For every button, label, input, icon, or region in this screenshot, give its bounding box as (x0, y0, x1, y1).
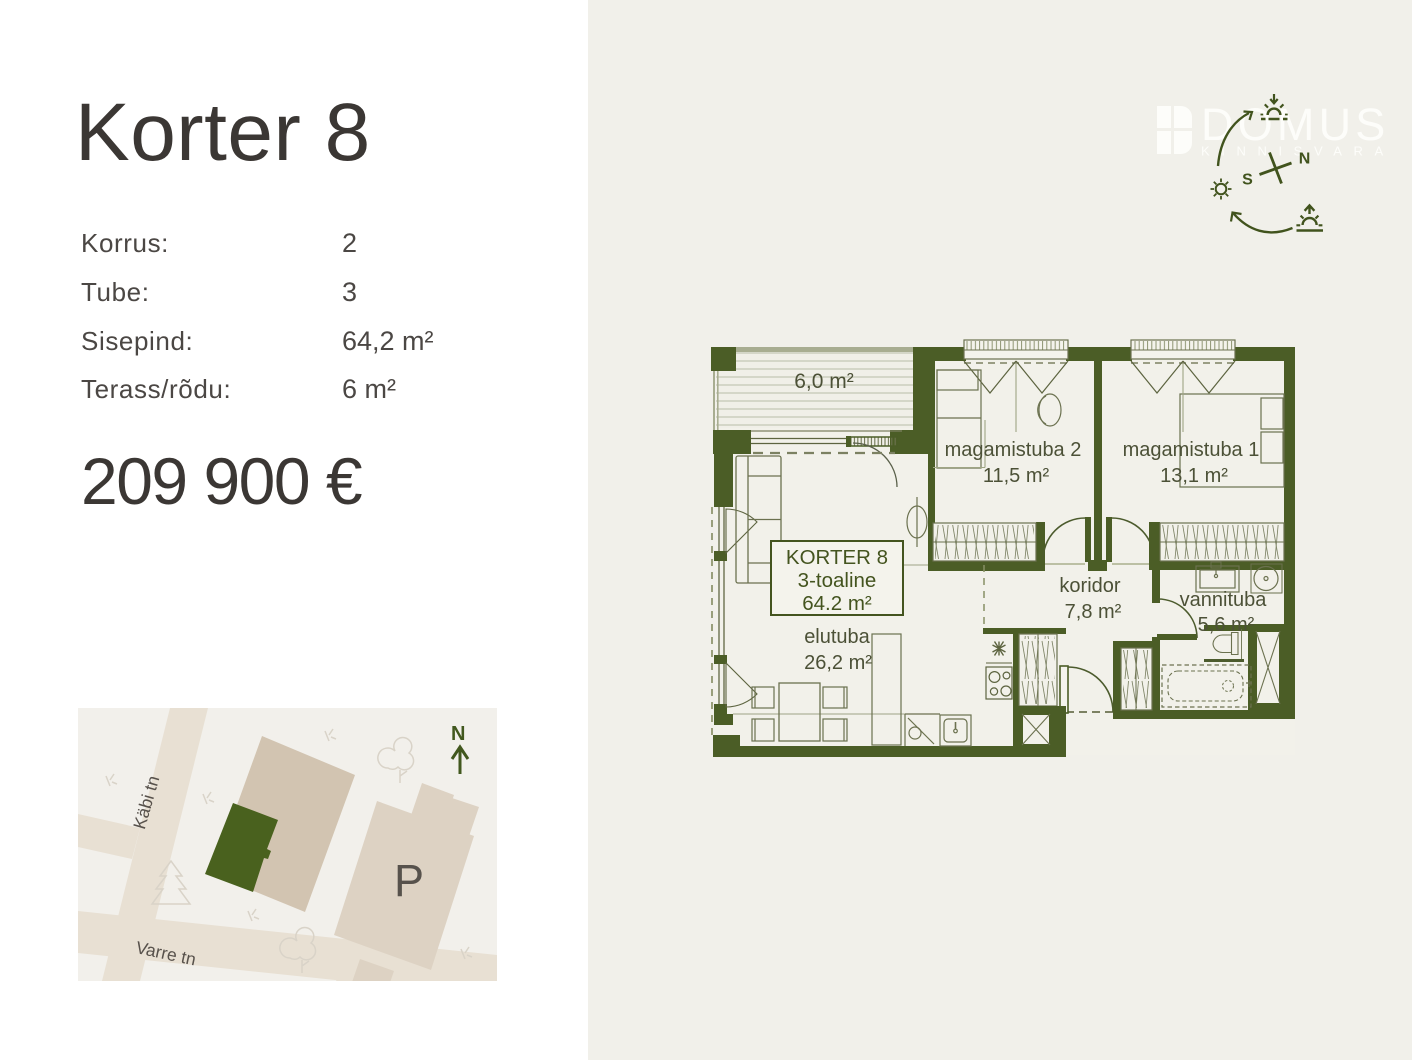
svg-text:koridor: koridor (1059, 575, 1120, 597)
svg-text:64.2 m²: 64.2 m² (802, 592, 872, 615)
svg-text:11,5 m²: 11,5 m² (983, 465, 1050, 487)
svg-text:P: P (394, 855, 424, 906)
svg-text:7,8 m²: 7,8 m² (1065, 601, 1122, 623)
svg-text:magamistuba 1: magamistuba 1 (1123, 439, 1260, 461)
svg-text:KORTER 8: KORTER 8 (786, 546, 888, 569)
svg-text:6,0 m²: 6,0 m² (794, 370, 854, 393)
svg-text:26,2 m²: 26,2 m² (804, 652, 872, 674)
svg-text:vannituba: vannituba (1180, 589, 1268, 611)
svg-text:3-toaline: 3-toaline (798, 569, 877, 592)
svg-text:magamistuba 2: magamistuba 2 (945, 439, 1082, 461)
svg-text:13,1 m²: 13,1 m² (1160, 465, 1228, 487)
svg-text:N: N (451, 723, 465, 745)
svg-text:N: N (1299, 151, 1311, 168)
svg-text:5,6 m²: 5,6 m² (1198, 614, 1255, 636)
svg-text:S: S (1242, 172, 1253, 189)
svg-text:elutuba: elutuba (804, 626, 870, 648)
